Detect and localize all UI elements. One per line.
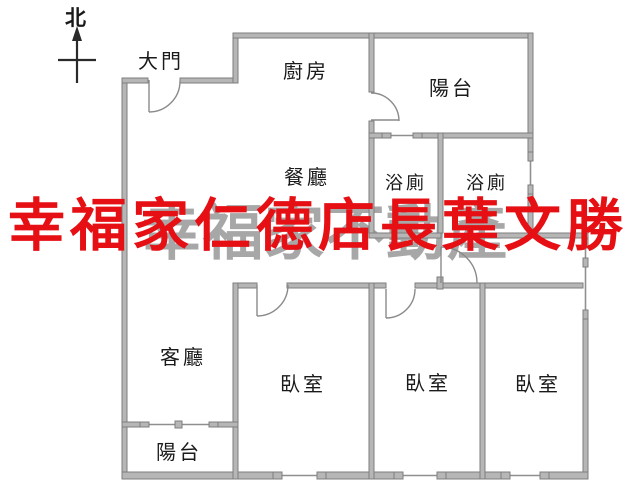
label-kitchen: 廚房 bbox=[283, 59, 329, 83]
wall-top-entry-right bbox=[180, 78, 238, 83]
wall-bottom-3 bbox=[446, 472, 501, 479]
wall-pier bbox=[437, 277, 443, 289]
wall-right-lower bbox=[583, 316, 588, 479]
label-balcony-top: 陽台 bbox=[429, 76, 475, 100]
wall-top-entry-left bbox=[122, 78, 148, 83]
window-cap bbox=[540, 472, 549, 479]
window-cap bbox=[583, 258, 588, 267]
window-cap bbox=[317, 472, 326, 479]
window-cap bbox=[437, 472, 446, 479]
agent-red-watermark: 幸福家仁德店長葉文勝 bbox=[8, 198, 628, 255]
wall-balcony-bottom-b bbox=[218, 422, 238, 427]
wall-kitchen-balcony bbox=[369, 33, 374, 92]
window-cap bbox=[501, 472, 510, 479]
wall-left-outer bbox=[122, 78, 127, 479]
label-bath-left: 浴廁 bbox=[385, 172, 427, 194]
label-entrance: 大門 bbox=[138, 49, 184, 73]
wall-step bbox=[233, 33, 238, 83]
window-cap bbox=[140, 422, 149, 427]
wall-bed1-bed2 bbox=[369, 283, 374, 479]
label-bedroom-right: 臥室 bbox=[515, 372, 561, 396]
wall-living-bed1 bbox=[233, 283, 238, 479]
wall-bottom-1 bbox=[122, 472, 273, 479]
window-cap bbox=[583, 310, 588, 319]
door-kitchen-balcony bbox=[371, 93, 399, 121]
floorplan-page: 幸福家不動產 bbox=[0, 0, 640, 480]
window-cap bbox=[413, 133, 422, 138]
label-bedroom-middle: 臥室 bbox=[405, 371, 451, 395]
label-bath-right: 浴廁 bbox=[466, 172, 508, 194]
label-bedroom-left: 臥室 bbox=[280, 372, 326, 396]
window-cap bbox=[394, 472, 403, 479]
wall-bath-top-a bbox=[369, 133, 383, 138]
label-balcony-bottom: 陽台 bbox=[156, 440, 202, 464]
window-cap bbox=[382, 133, 391, 138]
window-cap bbox=[209, 422, 218, 427]
slider-mid-tick bbox=[175, 421, 182, 428]
label-living: 客廳 bbox=[160, 345, 206, 369]
door-bedroom-middle bbox=[386, 289, 415, 318]
compass: 北 bbox=[58, 6, 96, 83]
windows bbox=[140, 133, 588, 479]
wall-bottom-2 bbox=[326, 472, 394, 479]
window-cap bbox=[273, 472, 282, 479]
wall-bed2-bed3 bbox=[480, 283, 485, 479]
wall-top-outer bbox=[233, 33, 533, 38]
door-entrance bbox=[149, 80, 180, 112]
label-dining: 餐廳 bbox=[284, 165, 330, 189]
door-bedroom-left bbox=[257, 285, 288, 316]
wall-balcony-bottom-a bbox=[122, 422, 140, 427]
wall-bottom-4 bbox=[549, 472, 588, 479]
window-cap bbox=[528, 152, 533, 161]
